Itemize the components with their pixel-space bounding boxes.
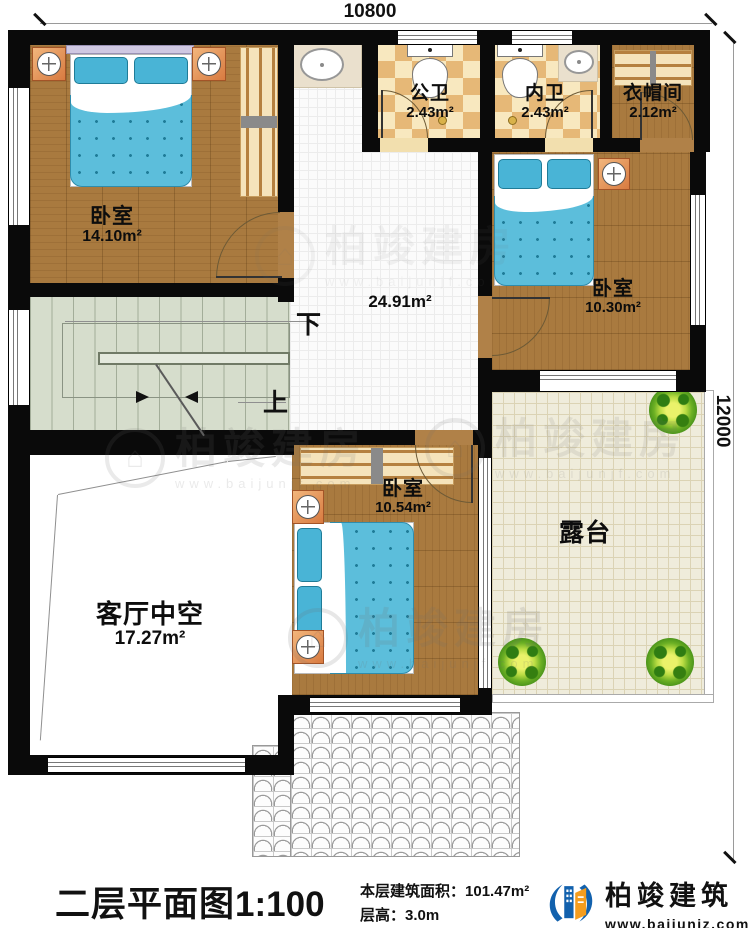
floor-area-line: 本层建筑面积：101.47m² — [360, 880, 529, 904]
bed-sheet-fold — [330, 523, 346, 673]
door-opening — [380, 138, 428, 152]
wardrobe-hangers — [240, 47, 278, 197]
stairs-direction-arrow — [136, 391, 149, 403]
top-dimension-label: 10800 — [328, 1, 412, 23]
sink-drain — [577, 60, 581, 64]
right-dimension-line — [733, 40, 734, 862]
bed-headboard — [66, 45, 194, 54]
window — [690, 195, 706, 325]
door-leaf — [216, 276, 282, 278]
cloakroom-hangers — [614, 50, 692, 86]
wall-segment — [8, 430, 294, 455]
lamp-icon — [602, 162, 626, 186]
room-label-bedroom1: 卧室 14.10m² — [52, 205, 172, 246]
right-dimension-label: 12000 — [711, 381, 733, 461]
window — [310, 697, 460, 713]
door-opening — [640, 138, 694, 152]
plant — [649, 386, 697, 434]
plant — [646, 638, 694, 686]
company-name: 柏竣建筑 — [605, 874, 750, 913]
terrace-parapet — [492, 694, 714, 703]
window — [398, 30, 477, 45]
stairs-up-label: 上 — [263, 383, 288, 419]
stairs-direction-arrow — [185, 391, 198, 403]
bed-pillow — [134, 57, 188, 84]
sink-drain — [320, 63, 324, 67]
room-label-ensuite-bath: 内卫 2.43m² — [505, 84, 585, 121]
sink — [300, 48, 344, 81]
door-leaf — [471, 445, 473, 503]
wall-segment — [362, 30, 378, 152]
roof-tiles — [290, 712, 520, 857]
toilet-button — [428, 48, 432, 52]
dimension-tick — [723, 31, 736, 44]
top-dimension-line — [40, 23, 712, 24]
door-opening — [545, 138, 593, 152]
wall-segment — [478, 392, 492, 445]
company-logo-icon — [543, 876, 599, 928]
room-label-public-bath: 公卫 2.43m² — [390, 84, 470, 121]
bed-pillow — [547, 159, 591, 189]
window — [8, 310, 30, 405]
window — [512, 30, 572, 45]
toilet-button — [518, 48, 522, 52]
window — [478, 458, 492, 688]
door-opening — [415, 430, 473, 445]
plan-stats: 本层建筑面积：101.47m² 层高：3.0m — [360, 880, 529, 928]
wall-segment — [8, 283, 294, 297]
nightstand — [192, 47, 226, 81]
nightstand — [292, 490, 324, 524]
plant — [498, 638, 546, 686]
window — [540, 370, 676, 392]
room-label-terrace: 露台 — [545, 520, 625, 548]
bed-pillow — [297, 528, 322, 582]
lamp-icon — [296, 495, 320, 519]
room-label-bedroom2: 卧室 10.30m² — [563, 278, 663, 317]
bed-pillow — [498, 159, 542, 189]
company-url: www.baijunjz.com — [605, 916, 750, 928]
window — [8, 88, 30, 225]
room-label-bedroom3: 卧室 10.54m² — [353, 478, 453, 517]
window — [48, 757, 245, 773]
room-label-cloakroom: 衣帽间 2.12m² — [608, 84, 698, 121]
lamp-icon — [37, 52, 61, 76]
nightstand — [598, 158, 630, 190]
stairs-down-label: 下 — [296, 305, 321, 341]
nightstand — [292, 630, 324, 664]
room-label-living-void: 客厅中空 17.27m² — [75, 600, 225, 649]
floor-plan-page: 10800 12000 下 上 — [0, 0, 750, 928]
sink — [564, 50, 594, 74]
lamp-icon — [296, 635, 320, 659]
stairs-guide-line — [65, 321, 315, 322]
door-leaf — [381, 90, 383, 138]
company-logo: 柏竣建筑 www.baijunjz.com — [543, 874, 750, 928]
door-leaf — [492, 297, 550, 299]
dimension-tick — [723, 851, 736, 864]
nightstand — [32, 47, 66, 81]
door-opening — [278, 212, 294, 278]
room-label-hallway: 24.91m² — [320, 293, 480, 312]
door-leaf — [591, 90, 593, 138]
stairs-handrail — [98, 352, 290, 365]
lamp-icon — [197, 52, 221, 76]
floor-height-line: 层高：3.0m — [360, 904, 529, 928]
door-opening — [478, 296, 492, 358]
wall-segment — [480, 30, 495, 152]
plan-title: 二层平面图1:100 — [55, 876, 335, 928]
bed-pillow — [74, 57, 128, 84]
